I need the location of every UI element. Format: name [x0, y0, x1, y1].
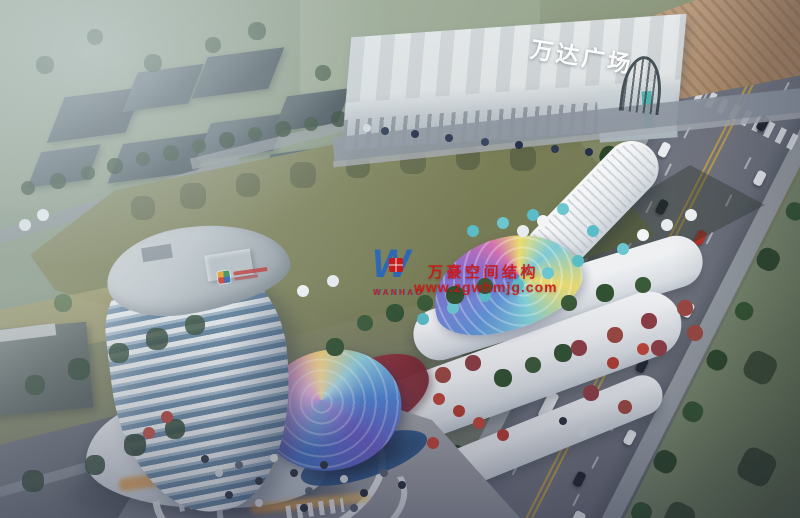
tower-brand-emblem-icon [217, 270, 231, 284]
watermark: W WANHAO 万豪空间结构 www.zgwhmjg.com [372, 250, 562, 306]
wanhao-logo-badge-icon [389, 258, 403, 272]
watermark-website-url: www.zgwhmjg.com [414, 279, 558, 295]
tower-brand-text [234, 274, 258, 280]
warehouse-building [0, 322, 94, 417]
pedestrians [0, 0, 6, 6]
architectural-rendering: 万达广场 W WANHAO 万豪空间结构 www.zgwhm [0, 0, 800, 518]
